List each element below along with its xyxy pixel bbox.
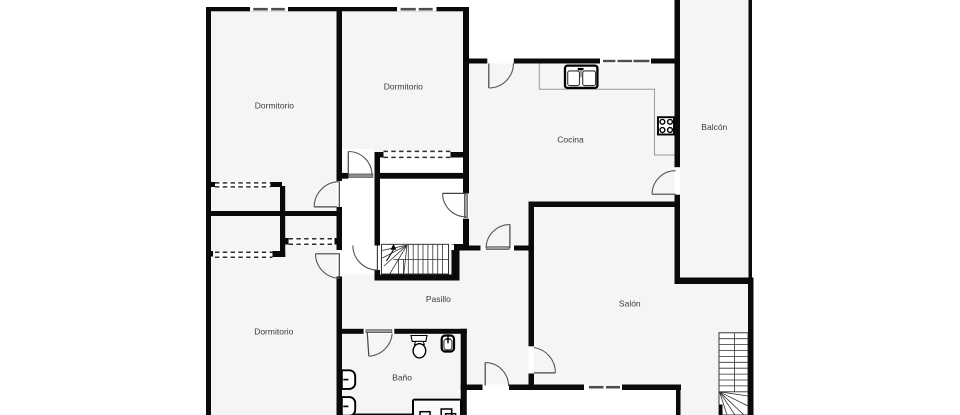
svg-text:Cocina: Cocina	[557, 134, 584, 144]
svg-text:Dormitorio: Dormitorio	[384, 81, 423, 91]
svg-text:Pasillo: Pasillo	[426, 294, 451, 304]
svg-text:Balcón: Balcón	[701, 122, 727, 132]
svg-text:Salón: Salón	[619, 298, 641, 308]
svg-text:Dormitorio: Dormitorio	[254, 327, 293, 337]
svg-text:Dormitorio: Dormitorio	[255, 101, 294, 111]
svg-text:Baño: Baño	[392, 373, 412, 383]
